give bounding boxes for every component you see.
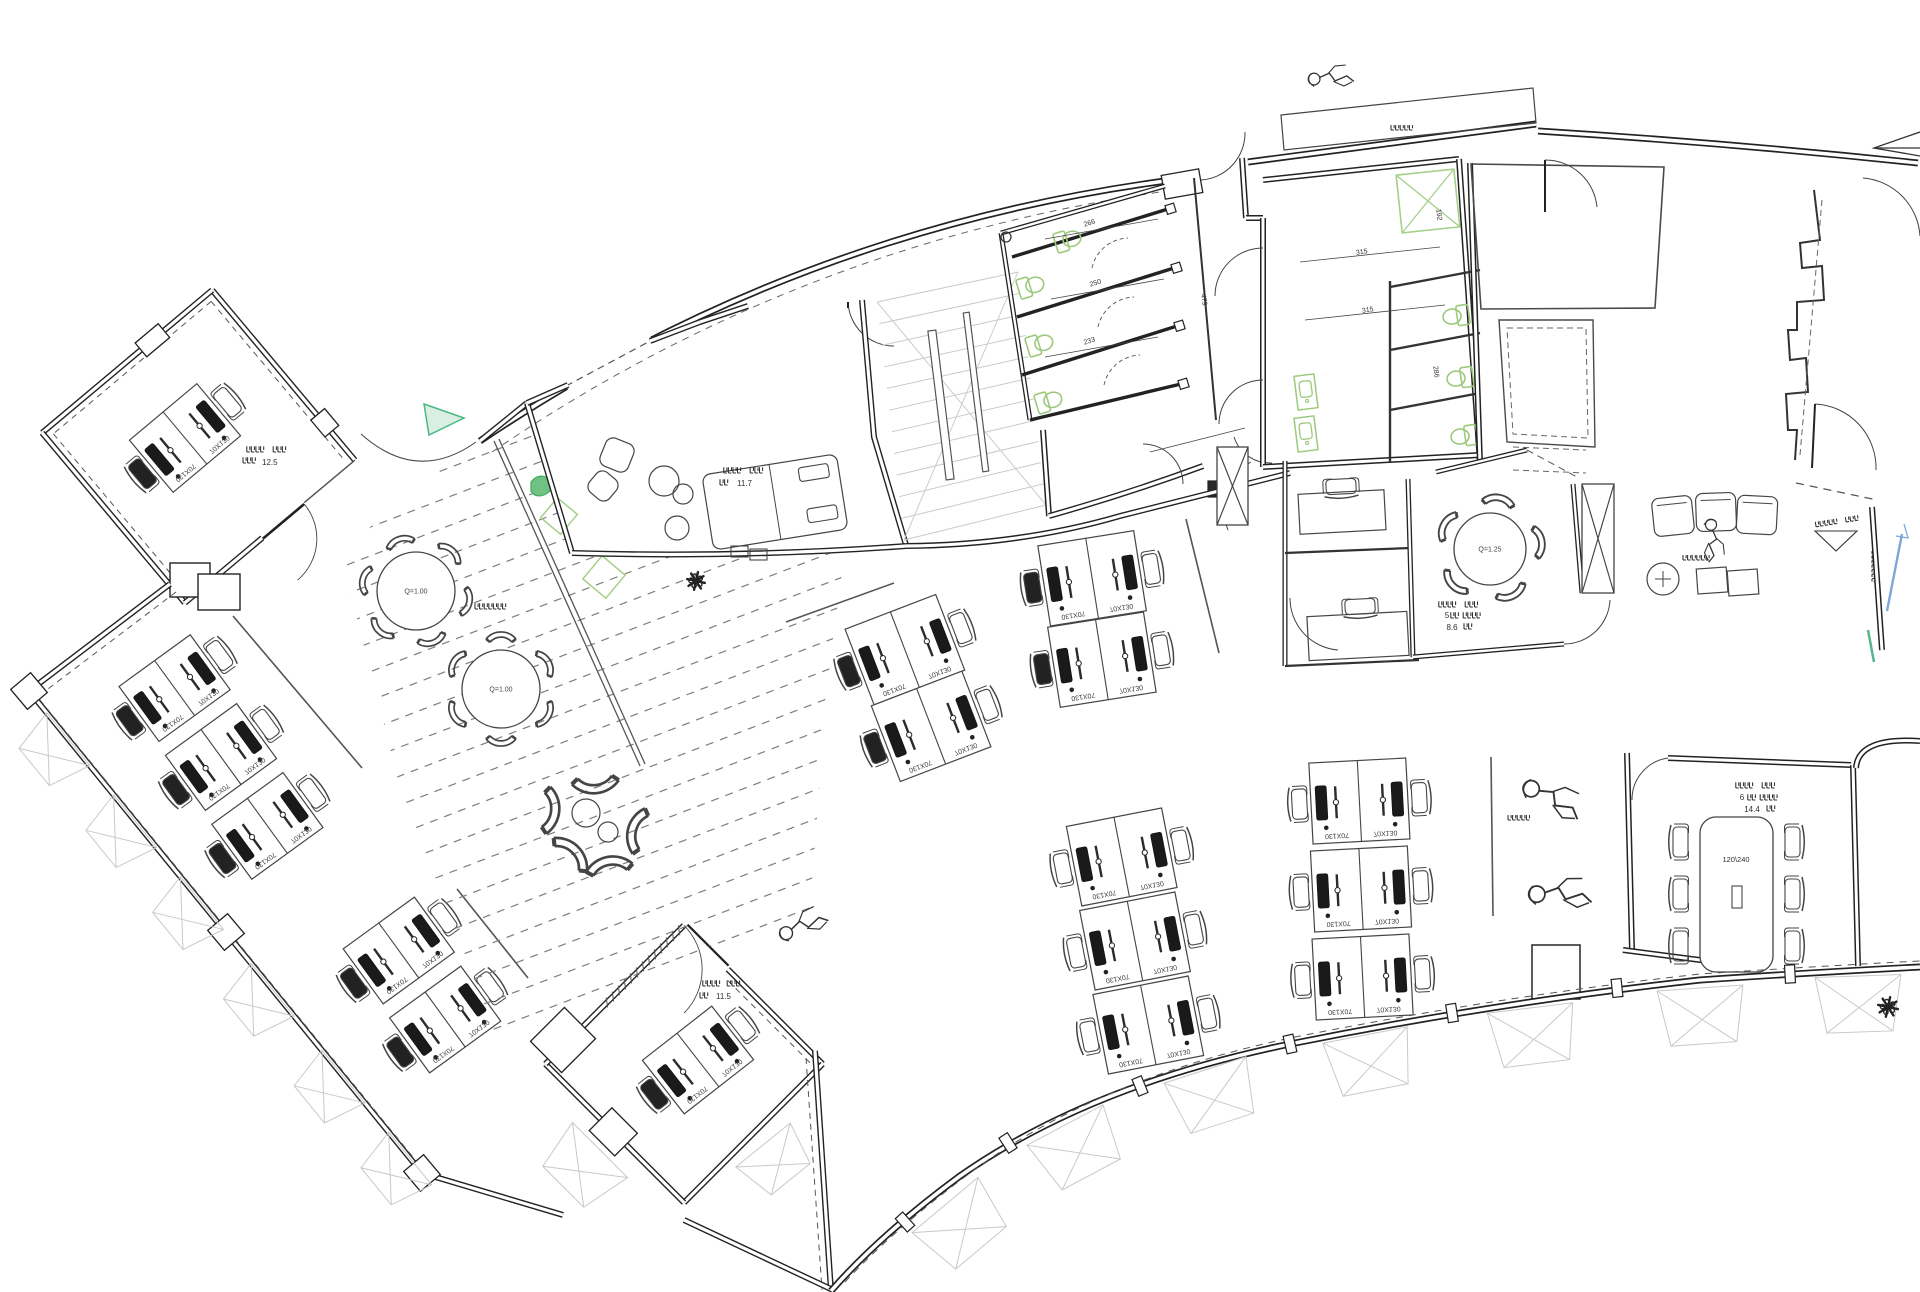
svg-text:5: 5 <box>1445 611 1450 620</box>
svg-text:Q=1.00: Q=1.00 <box>404 589 427 596</box>
svg-text:12.5: 12.5 <box>262 458 278 467</box>
svg-text:70X130: 70X130 <box>1325 831 1350 839</box>
svg-text:Q=1.00: Q=1.00 <box>489 687 512 694</box>
svg-text:11.7: 11.7 <box>737 479 753 488</box>
svg-text:14.4: 14.4 <box>1744 805 1760 814</box>
svg-text:6: 6 <box>1740 793 1745 802</box>
svg-text:120\240: 120\240 <box>1722 855 1749 864</box>
svg-text:70X130: 70X130 <box>1376 1005 1401 1013</box>
svg-text:70X130: 70X130 <box>1373 829 1398 837</box>
svg-text:286: 286 <box>1431 366 1439 378</box>
svg-text:8.6: 8.6 <box>1446 623 1458 632</box>
svg-text:479: 479 <box>1199 294 1207 307</box>
svg-text:70X130: 70X130 <box>1326 919 1351 927</box>
svg-text:70X130: 70X130 <box>1328 1007 1353 1015</box>
svg-text:11.5: 11.5 <box>716 992 732 1001</box>
svg-text:70X130: 70X130 <box>1375 917 1400 925</box>
svg-text:192: 192 <box>1434 209 1442 221</box>
svg-text:Q=1.25: Q=1.25 <box>1478 547 1501 554</box>
